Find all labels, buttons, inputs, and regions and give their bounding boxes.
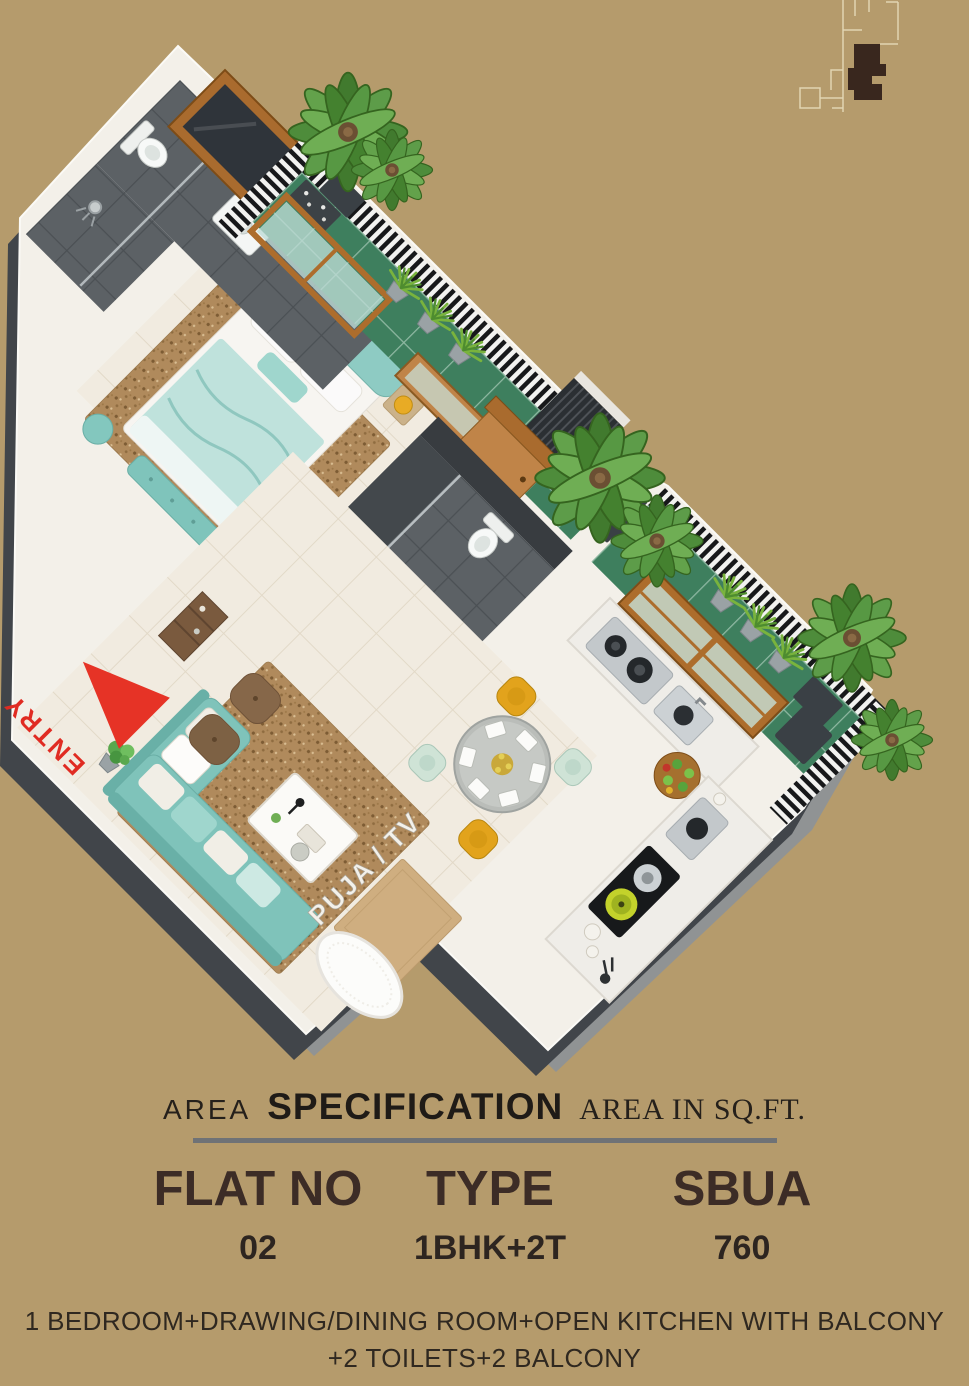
spec-table: FLAT NO 02 TYPE 1BHK+2T SBUA 760	[0, 1161, 969, 1289]
spec-underline	[193, 1138, 777, 1143]
brochure-page: PUJA / TV ENTRY AREA SPECIFICATION AREA …	[0, 0, 969, 1386]
key-plan-unit-highlight	[848, 44, 886, 100]
unit-description-line2: +2 TOILETS+2 BALCONY	[0, 1340, 969, 1377]
area-specification-section: AREA SPECIFICATION AREA IN SQ.FT. FLAT N…	[0, 1086, 969, 1377]
spec-title-prefix: AREA	[163, 1094, 251, 1126]
spec-value: 760	[592, 1229, 892, 1268]
spec-column-sbua: SBUA 760	[592, 1161, 892, 1268]
spec-title-main: SPECIFICATION	[267, 1086, 563, 1128]
spec-title-suffix: AREA IN SQ.FT.	[579, 1093, 806, 1127]
key-plan-sketch	[800, 0, 898, 112]
unit-description: 1 BEDROOM+DRAWING/DINING ROOM+OPEN KITCH…	[0, 1303, 969, 1377]
spec-label: SBUA	[592, 1161, 892, 1217]
unit-description-line1: 1 BEDROOM+DRAWING/DINING ROOM+OPEN KITCH…	[0, 1303, 969, 1340]
floor-plan-render: PUJA / TV ENTRY	[0, 0, 969, 1090]
spec-title: AREA SPECIFICATION AREA IN SQ.FT.	[0, 1086, 969, 1128]
